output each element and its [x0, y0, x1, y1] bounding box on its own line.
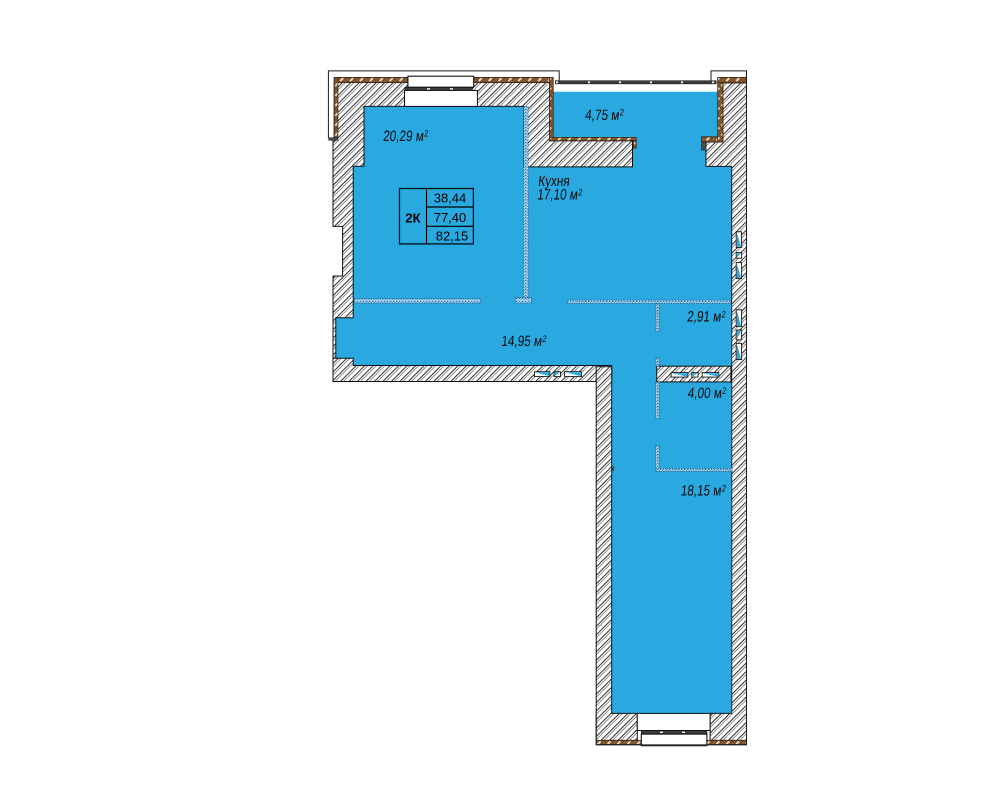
svg-text:18,15 м2: 18,15 м2 [680, 482, 727, 499]
svg-text:14,95 м2: 14,95 м2 [501, 333, 548, 350]
svg-text:77,40: 77,40 [434, 210, 467, 225]
svg-text:4,75 м2: 4,75 м2 [584, 106, 624, 123]
svg-text:38,44: 38,44 [434, 191, 467, 206]
svg-text:2,91 м2: 2,91 м2 [686, 308, 726, 325]
svg-text:4,00 м2: 4,00 м2 [687, 385, 727, 402]
svg-text:20,29 м2: 20,29 м2 [382, 128, 429, 145]
svg-text:2К: 2К [405, 211, 420, 226]
svg-text:17,10 м2: 17,10 м2 [537, 186, 584, 203]
svg-text:82,15: 82,15 [436, 228, 469, 243]
